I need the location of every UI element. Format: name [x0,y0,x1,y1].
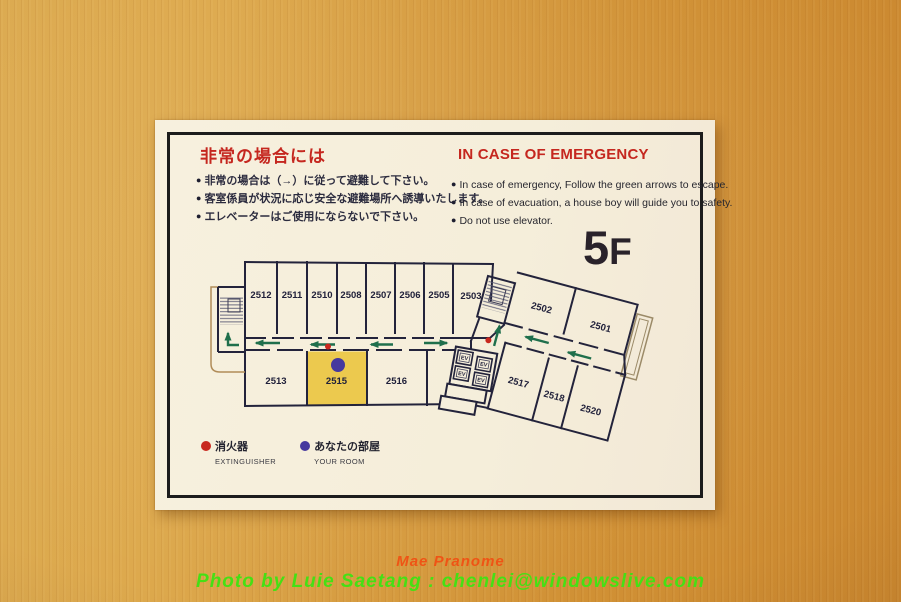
escape-arrow-up [228,333,239,345]
extinguisher-dot [325,344,331,350]
watermark-title: Mae Pranome [0,554,901,571]
jp-instruction-line: ●非常の場合は（→）に従って避難して下さい。 [196,172,489,190]
jp-instruction-text: 客室係員が状況に応じ安全な避難場所へ誘導いたします。 [204,193,489,205]
legend: 消火器 EXTINGUISHER あなたの部屋 YOUR ROOM [201,438,380,466]
bullet-icon: ● [451,197,456,207]
room-label: 2517 [507,375,530,391]
your-room-dot-icon [300,441,310,451]
en-instruction-line: ●In case of emergency, Follow the green … [451,176,732,194]
bullet-icon: ● [196,211,201,221]
escape-arrow-up [494,326,499,346]
floor-plan: EV EV EV EV [195,242,675,454]
japanese-title: 非常の場合には [200,142,326,167]
jp-instruction-line: ●エレベーターはご使用にならないで下さい。 [196,208,489,226]
jp-instruction-text: 非常の場合は（→）に従って避難して下さい。 [204,175,434,187]
legend-your-room-en: YOUR ROOM [314,457,380,466]
room-label: 2502 [530,300,553,316]
legend-extinguisher: 消火器 EXTINGUISHER [201,438,276,466]
legend-extinguisher-en: EXTINGUISHER [215,457,276,466]
room-label: 2508 [340,290,361,301]
en-instruction-text: In case of emergency, Follow the green a… [459,179,728,191]
legend-your-room-jp: あなたの部屋 [314,438,380,454]
jp-instruction-line: ●客室係員が状況に応じ安全な避難場所へ誘導いたします。 [196,190,489,208]
room-label: 2513 [265,376,286,387]
room-label: 2511 [282,290,303,301]
bullet-icon: ● [196,193,201,203]
room-label: 2520 [579,403,602,419]
bullet-icon: ● [451,215,456,225]
room-label: 2518 [542,389,565,405]
photo-watermark: Mae Pranome Photo by Luie Saetang : chen… [0,554,901,592]
en-instruction-text: In case of evacuation, a house boy will … [459,197,732,209]
jp-instruction-text: エレベーターはご使用にならないで下さい。 [204,211,424,223]
japanese-instructions: ●非常の場合は（→）に従って避難して下さい。 ●客室係員が状況に応じ安全な避難場… [196,172,489,226]
en-instruction-line: ●In case of evacuation, a house boy will… [451,194,732,212]
left-staircase [211,287,245,372]
room-label: 2503 [460,291,481,302]
bullet-icon: ● [451,179,456,189]
your-room-dot [331,358,345,372]
room-label: 2516 [386,376,407,387]
legend-extinguisher-jp: 消火器 [215,438,276,454]
room-label: 2512 [250,290,271,301]
emergency-sign-card: 非常の場合には IN CASE OF EMERGENCY ●非常の場合は（→）に… [155,120,715,510]
wood-wall-background: 非常の場合には IN CASE OF EMERGENCY ●非常の場合は（→）に… [0,0,901,602]
english-title: IN CASE OF EMERGENCY [458,146,649,163]
extinguisher-dot-icon [201,441,211,451]
room-label: 2506 [399,290,420,301]
escape-arrow-left [526,337,549,343]
legend-your-room: あなたの部屋 YOUR ROOM [300,438,380,466]
room-label: 2505 [428,290,450,301]
bullet-icon: ● [196,175,201,185]
en-instruction-text: Do not use elevator. [459,215,552,227]
room-label: 2510 [311,290,332,301]
room-label: 2515 [326,376,348,387]
room-label: 2501 [589,319,613,335]
escape-arrow-left [568,352,591,358]
room-label: 2507 [370,290,391,301]
watermark-credit: Photo by Luie Saetang : chenlei@windowsl… [0,572,901,593]
